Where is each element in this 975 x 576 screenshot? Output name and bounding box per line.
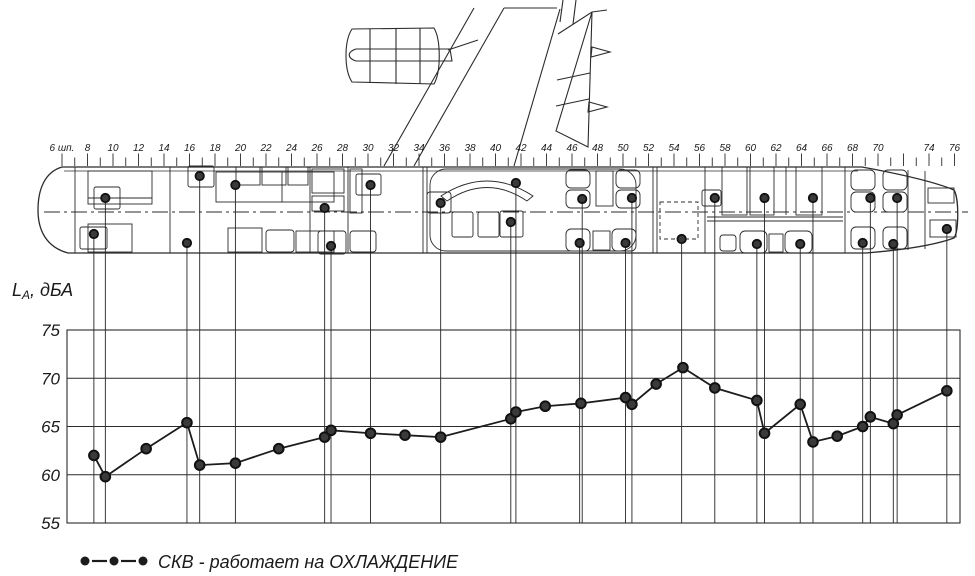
noise-data-point [627, 400, 637, 410]
frame-tick-label: 50 [617, 143, 629, 154]
plan-measurement-dot [327, 242, 335, 250]
frame-tick-label: 30 [362, 143, 374, 154]
legend-dot [110, 557, 119, 566]
plan-measurement-dot [760, 194, 768, 202]
plan-measurement-dot [436, 199, 444, 207]
legend-dot [139, 557, 148, 566]
frame-tick-label: 56 [694, 143, 706, 154]
fuselage-plan [38, 166, 968, 254]
legend-symbol [81, 557, 148, 566]
engine-nacelle [346, 28, 439, 84]
plan-measurement-dot [231, 181, 239, 189]
plan-measurement-dot [809, 194, 817, 202]
legend: СКВ - работает на ОХЛАЖДЕНИЕ [81, 552, 460, 572]
y-axis-label: LА, дБА [12, 280, 73, 302]
frame-tick-label: 58 [719, 143, 731, 154]
legend-label: СКВ - работает на ОХЛАЖДЕНИЕ [158, 552, 459, 572]
frame-tick-label: 68 [847, 143, 859, 154]
frame-ruler: 6 шп.81012141618202224262830323436384042… [50, 143, 961, 166]
frame-tick-label: 46 [566, 143, 578, 154]
noise-data-point [942, 386, 952, 396]
frame-tick-label: 62 [770, 143, 782, 154]
frame-tick-label: 16 [184, 143, 196, 154]
plan-measurement-dot [943, 225, 951, 233]
noise-data-point [326, 426, 336, 436]
plan-measurement-dot [507, 218, 515, 226]
noise-data-point [101, 472, 111, 482]
frame-tick-label: 54 [668, 143, 680, 154]
plan-measurement-dot [889, 240, 897, 248]
plan-measurement-dot [90, 230, 98, 238]
noise-data-point [576, 399, 586, 409]
plan-measurement-dot [512, 179, 520, 187]
frame-tick-label: 32 [388, 143, 400, 154]
noise-data-point [752, 396, 762, 406]
figure-canvas: 6 шп.81012141618202224262830323436384042… [0, 0, 975, 576]
wing-silhouette [346, 0, 610, 166]
fuselage-outline [38, 167, 958, 253]
noise-chart: LА, дБА 5560657075 [12, 280, 960, 533]
noise-data-point [141, 444, 151, 454]
frame-tick-label: 42 [515, 143, 527, 154]
plan-measurement-dot [711, 194, 719, 202]
frame-tick-label: 18 [209, 143, 221, 154]
plan-measurement-dot [859, 239, 867, 247]
plan-measurement-dot [866, 194, 874, 202]
y-tick-label: 65 [41, 418, 60, 437]
y-tick-label: 60 [41, 466, 60, 485]
plan-measurement-dot [893, 194, 901, 202]
frame-tick-label: 70 [872, 143, 884, 154]
noise-data-point [274, 444, 284, 454]
noise-data-point [678, 363, 688, 373]
frame-tick-label: 64 [796, 143, 808, 154]
y-tick-label: 75 [41, 321, 60, 340]
plan-measurement-dot [628, 194, 636, 202]
plan-measurement-dot [320, 204, 328, 212]
frame-tick-label: 24 [285, 143, 298, 154]
frame-tick-label: 6 шп. [50, 143, 75, 154]
noise-data-point [760, 428, 770, 438]
noise-data-point [540, 401, 550, 411]
noise-data-point [892, 410, 902, 420]
plan-measurement-dot [677, 235, 685, 243]
noise-data-point [651, 379, 661, 389]
noise-data-point [366, 428, 376, 438]
frame-tick-label: 38 [464, 143, 476, 154]
noise-data-point [808, 437, 818, 447]
noise-data-point [795, 400, 805, 410]
frame-tick-label: 44 [541, 143, 553, 154]
plan-measurement-dot [101, 194, 109, 202]
noise-data-point [195, 460, 205, 470]
frame-tick-label: 22 [259, 143, 272, 154]
frame-tick-label: 28 [336, 143, 349, 154]
frame-tick-label: 12 [133, 143, 145, 154]
noise-data-point [832, 431, 842, 441]
frame-tick-label: 20 [234, 143, 247, 154]
noise-data-point [436, 432, 446, 442]
plan-measurement-dot [621, 239, 629, 247]
noise-data-point [182, 418, 192, 428]
frame-tick-label: 76 [949, 143, 961, 154]
legend-dot [81, 557, 90, 566]
frame-tick-label: 8 [85, 143, 91, 154]
noise-series [89, 363, 952, 482]
frame-tick-label: 48 [592, 143, 604, 154]
frame-tick-label: 26 [310, 143, 323, 154]
plan-measurement-dot [753, 240, 761, 248]
frame-tick-label: 40 [490, 143, 502, 154]
plan-measurement-dot [796, 240, 804, 248]
plan-measurement-dot [366, 181, 374, 189]
frame-tick-label: 74 [923, 143, 935, 154]
figure-noise-map: 6 шп.81012141618202224262830323436384042… [0, 0, 975, 576]
noise-data-point [866, 412, 876, 422]
outer-panel [556, 10, 607, 147]
noise-data-point [511, 407, 521, 417]
measurement-connectors [90, 172, 951, 523]
y-tick-label: 70 [41, 369, 60, 388]
nacelle-ribs [370, 28, 420, 84]
frame-tick-label: 60 [745, 143, 757, 154]
frame-tick-label: 14 [158, 143, 170, 154]
plan-measurement-dot [196, 172, 204, 180]
frame-tick-label: 52 [643, 143, 655, 154]
noise-data-point [89, 451, 99, 461]
nacelle-intake-band [349, 49, 452, 61]
noise-data-point [710, 383, 720, 393]
frame-tick-label: 66 [821, 143, 833, 154]
frame-tick-label: 34 [413, 143, 425, 154]
plan-measurement-dot [578, 195, 586, 203]
frame-tick-label: 10 [107, 143, 119, 154]
frame-tick-label: 36 [439, 143, 451, 154]
noise-curve [94, 368, 947, 477]
noise-data-point [231, 458, 241, 468]
noise-data-point [858, 422, 868, 432]
noise-data-point [400, 430, 410, 440]
y-tick-label: 55 [41, 514, 60, 533]
plan-measurement-dot [183, 239, 191, 247]
